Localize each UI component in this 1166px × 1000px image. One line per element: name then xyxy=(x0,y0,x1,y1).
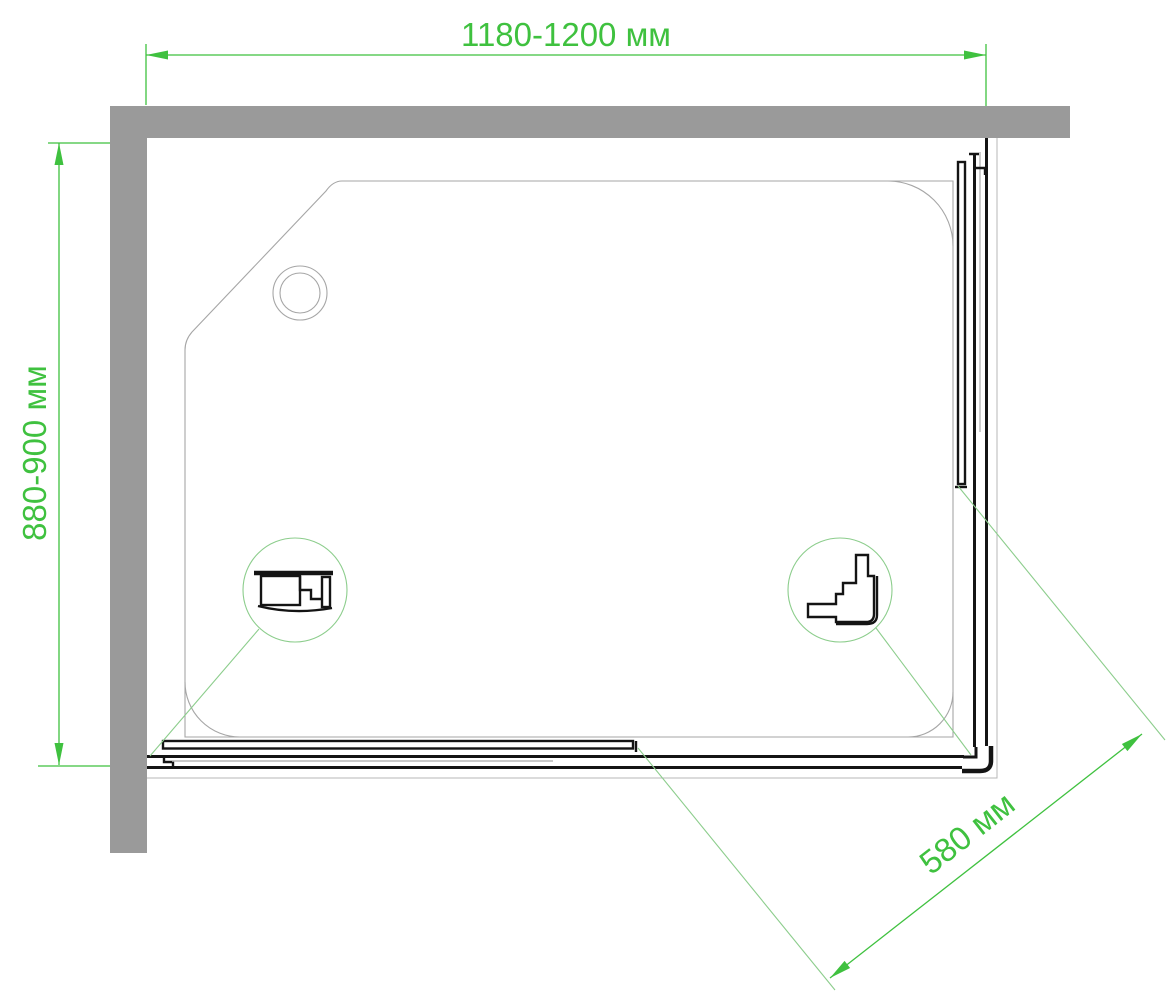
frame-boundary xyxy=(147,138,997,778)
technical-drawing-page: 1180-1200 мм 880-900 мм 580 мм xyxy=(0,0,1166,1000)
frame-boundary-line xyxy=(147,138,997,778)
bottom-sliding-door xyxy=(163,741,633,749)
depth-dimension-label: 880-900 мм xyxy=(16,365,53,541)
top-wall xyxy=(110,106,1070,138)
depth-arrow-top-icon xyxy=(55,143,64,165)
entry-extension-line-left xyxy=(638,748,835,990)
entry-arrow-right-icon xyxy=(1122,730,1145,751)
right-panel-assembly xyxy=(955,138,987,747)
left-callout-profile xyxy=(254,573,333,611)
depth-arrow-bottom-icon xyxy=(55,743,64,765)
right-rail-top-bracket xyxy=(969,154,985,175)
left-profile-box xyxy=(261,576,300,605)
detail-callout-left xyxy=(150,538,347,756)
drain-inner-circle xyxy=(280,273,320,313)
left-callout-circle xyxy=(243,538,347,642)
right-profile-stair-body xyxy=(808,555,874,622)
detail-callout-right xyxy=(788,538,971,755)
entry-extension-line-right xyxy=(958,486,1165,740)
width-dimension-label: 1180-1200 мм xyxy=(461,16,671,53)
bottom-panel-assembly xyxy=(147,741,991,771)
tray-outline xyxy=(185,181,953,737)
corner-bracket-inner-step xyxy=(963,747,976,757)
tray-corner-arc-top-right xyxy=(888,181,953,246)
tray-corner-arc-bottom-left xyxy=(185,682,240,737)
width-dimension: 1180-1200 мм xyxy=(146,16,986,106)
entry-width-dimension-label: 580 мм xyxy=(912,785,1021,882)
width-arrow-left-icon xyxy=(146,51,168,60)
right-sliding-door xyxy=(958,162,965,484)
shower-enclosure-plan-drawing: 1180-1200 мм 880-900 мм 580 мм xyxy=(0,0,1166,1000)
drain-outer-circle xyxy=(273,266,327,320)
left-profile-right-flange xyxy=(322,577,330,607)
right-callout-leader-line xyxy=(876,628,971,755)
shower-tray xyxy=(185,181,953,737)
tray-corner-arc-bottom-right xyxy=(908,692,953,737)
entry-arrow-left-icon xyxy=(827,961,850,982)
width-arrow-right-icon xyxy=(964,51,986,60)
entry-width-dimension: 580 мм xyxy=(638,486,1165,990)
left-profile-step xyxy=(300,576,322,599)
right-callout-profile xyxy=(808,555,877,624)
left-wall xyxy=(110,138,147,853)
depth-dimension: 880-900 мм xyxy=(16,143,110,766)
